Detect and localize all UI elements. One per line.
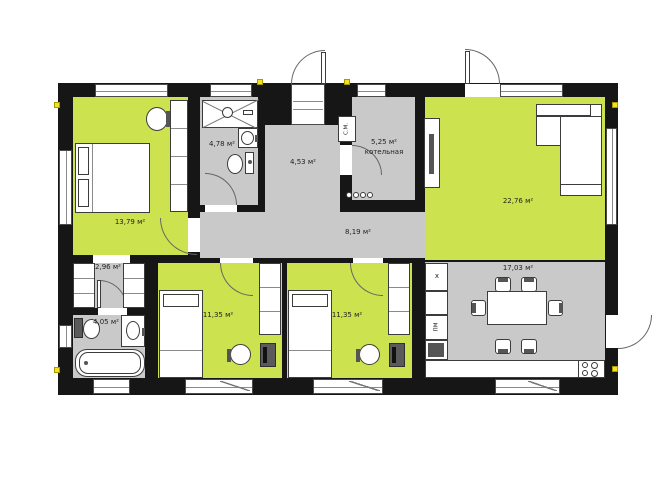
burner <box>582 370 588 376</box>
burner <box>582 362 588 368</box>
entrance-door-arc <box>291 50 325 84</box>
entrance-door-leaf <box>321 52 326 84</box>
window-opening-mark <box>528 381 557 391</box>
room-entry-hall <box>265 125 340 212</box>
corner-marker <box>612 366 618 372</box>
corner-marker <box>54 367 60 373</box>
cabinet-divider <box>260 287 280 288</box>
bathtub-inner <box>79 352 141 374</box>
radiator-manifold <box>346 192 352 198</box>
chair-back <box>498 278 508 282</box>
window <box>59 325 72 348</box>
cabinet-divider <box>171 156 187 157</box>
washbasin-bowl <box>241 131 254 145</box>
radiator-manifold <box>367 192 373 198</box>
pillow <box>78 147 89 175</box>
cabinet-divider <box>171 128 187 129</box>
desk-monitor <box>263 347 267 363</box>
room-label-wardrobe: 2,96 м² <box>95 263 121 272</box>
cabinet-divider <box>389 311 409 312</box>
door-opening-boiler <box>340 145 352 175</box>
shower-drain <box>222 107 233 118</box>
chair-back <box>559 303 563 313</box>
pillow <box>78 179 89 207</box>
chair-back <box>472 303 476 313</box>
window <box>357 84 386 97</box>
door-opening-kitchen-exit <box>606 315 618 348</box>
tv <box>429 134 434 174</box>
kitchen-exit-door-arc <box>618 315 652 349</box>
burner <box>591 362 598 369</box>
corner-marker <box>344 79 350 85</box>
faucet <box>142 328 145 336</box>
fridge-label: х <box>435 272 439 281</box>
room-hallway <box>200 212 425 258</box>
faucet <box>255 135 258 142</box>
window <box>95 84 168 97</box>
window <box>313 379 383 394</box>
washing-machine-label: С.М. <box>344 123 351 135</box>
room-label-master: 13,79 м² <box>115 218 145 227</box>
room-label-boiler-area: 5,25 м² <box>371 138 397 147</box>
burner <box>591 370 598 377</box>
cabinet-divider <box>171 184 187 185</box>
shower-mixer <box>243 110 253 115</box>
kitchen-sink <box>428 343 444 357</box>
corner-sofa-armrest <box>560 184 602 196</box>
radiator-manifold <box>353 192 359 198</box>
chair-back <box>524 349 534 353</box>
room-label-hallway: 8,19 м² <box>345 228 371 237</box>
desk-chair <box>230 344 251 365</box>
shelf-unit <box>123 263 145 308</box>
pillow <box>292 294 328 307</box>
window-opening-mark <box>220 381 250 391</box>
armchair-back <box>166 111 170 127</box>
shelf-divider <box>74 293 94 294</box>
window <box>93 379 130 394</box>
threshold-line <box>293 101 323 102</box>
flush-button <box>248 160 252 164</box>
shelf-unit <box>73 263 95 308</box>
entrance-threshold <box>291 84 325 125</box>
wardrobe-cabinet <box>388 263 410 335</box>
bathtub-faucet <box>84 361 88 365</box>
door-leaf <box>97 280 101 308</box>
chair-back <box>498 349 508 353</box>
chair-back <box>524 278 534 282</box>
room-label-kitchen: 17,03 м² <box>503 264 533 273</box>
shelf-divider <box>124 293 144 294</box>
dining-table <box>487 291 547 325</box>
floor-plan: С.М. х ПМ <box>0 0 669 502</box>
window-opening-mark <box>349 381 380 391</box>
bed-line <box>289 350 331 351</box>
armchair <box>146 107 168 131</box>
corner-marker <box>257 79 263 85</box>
toilet <box>227 154 243 174</box>
bed-line <box>92 144 93 212</box>
corner-marker <box>54 102 60 108</box>
pillow <box>163 294 199 307</box>
window <box>59 150 72 225</box>
door-opening-living-exit <box>465 84 500 97</box>
wardrobe-cabinet <box>259 263 281 335</box>
shelf-divider <box>124 278 144 279</box>
chair-back <box>356 349 360 362</box>
window <box>606 128 617 225</box>
door-opening-shower <box>205 205 237 212</box>
living-exit-door-leaf <box>465 51 470 84</box>
bed-line <box>160 350 202 351</box>
room-label-living: 22,76 м² <box>503 197 533 206</box>
door-opening-master-wardrobe <box>93 255 130 263</box>
kitchen-cabinet <box>425 291 448 315</box>
room-label-shower: 4,78 м² <box>209 140 235 149</box>
room-label-bedroom-1: 11,35 м² <box>203 311 233 320</box>
desk-monitor <box>392 347 396 363</box>
radiator-manifold <box>360 192 366 198</box>
cabinet-divider <box>260 311 280 312</box>
room-label-boiler-name: котельная <box>365 148 404 157</box>
door-opening-wardrobe-bath <box>98 308 127 315</box>
threshold-line <box>293 109 323 110</box>
window <box>185 379 253 394</box>
chair-back <box>227 349 231 362</box>
cabinet-divider <box>389 287 409 288</box>
dishwasher-label: ПМ <box>434 323 441 332</box>
window <box>500 84 563 97</box>
desk-chair <box>359 344 380 365</box>
corner-sofa-seat <box>560 116 602 186</box>
living-exit-door-arc <box>465 49 500 84</box>
washbasin-bowl <box>126 321 140 340</box>
window <box>495 379 560 394</box>
corner-marker <box>612 102 618 108</box>
shelf-divider <box>74 278 94 279</box>
room-label-entry: 4,53 м² <box>290 158 316 167</box>
toilet-cistern <box>74 318 83 338</box>
window <box>210 84 252 97</box>
room-label-bedroom-2: 11,35 м² <box>332 311 362 320</box>
room-label-bathroom: 4,05 м² <box>93 318 119 327</box>
